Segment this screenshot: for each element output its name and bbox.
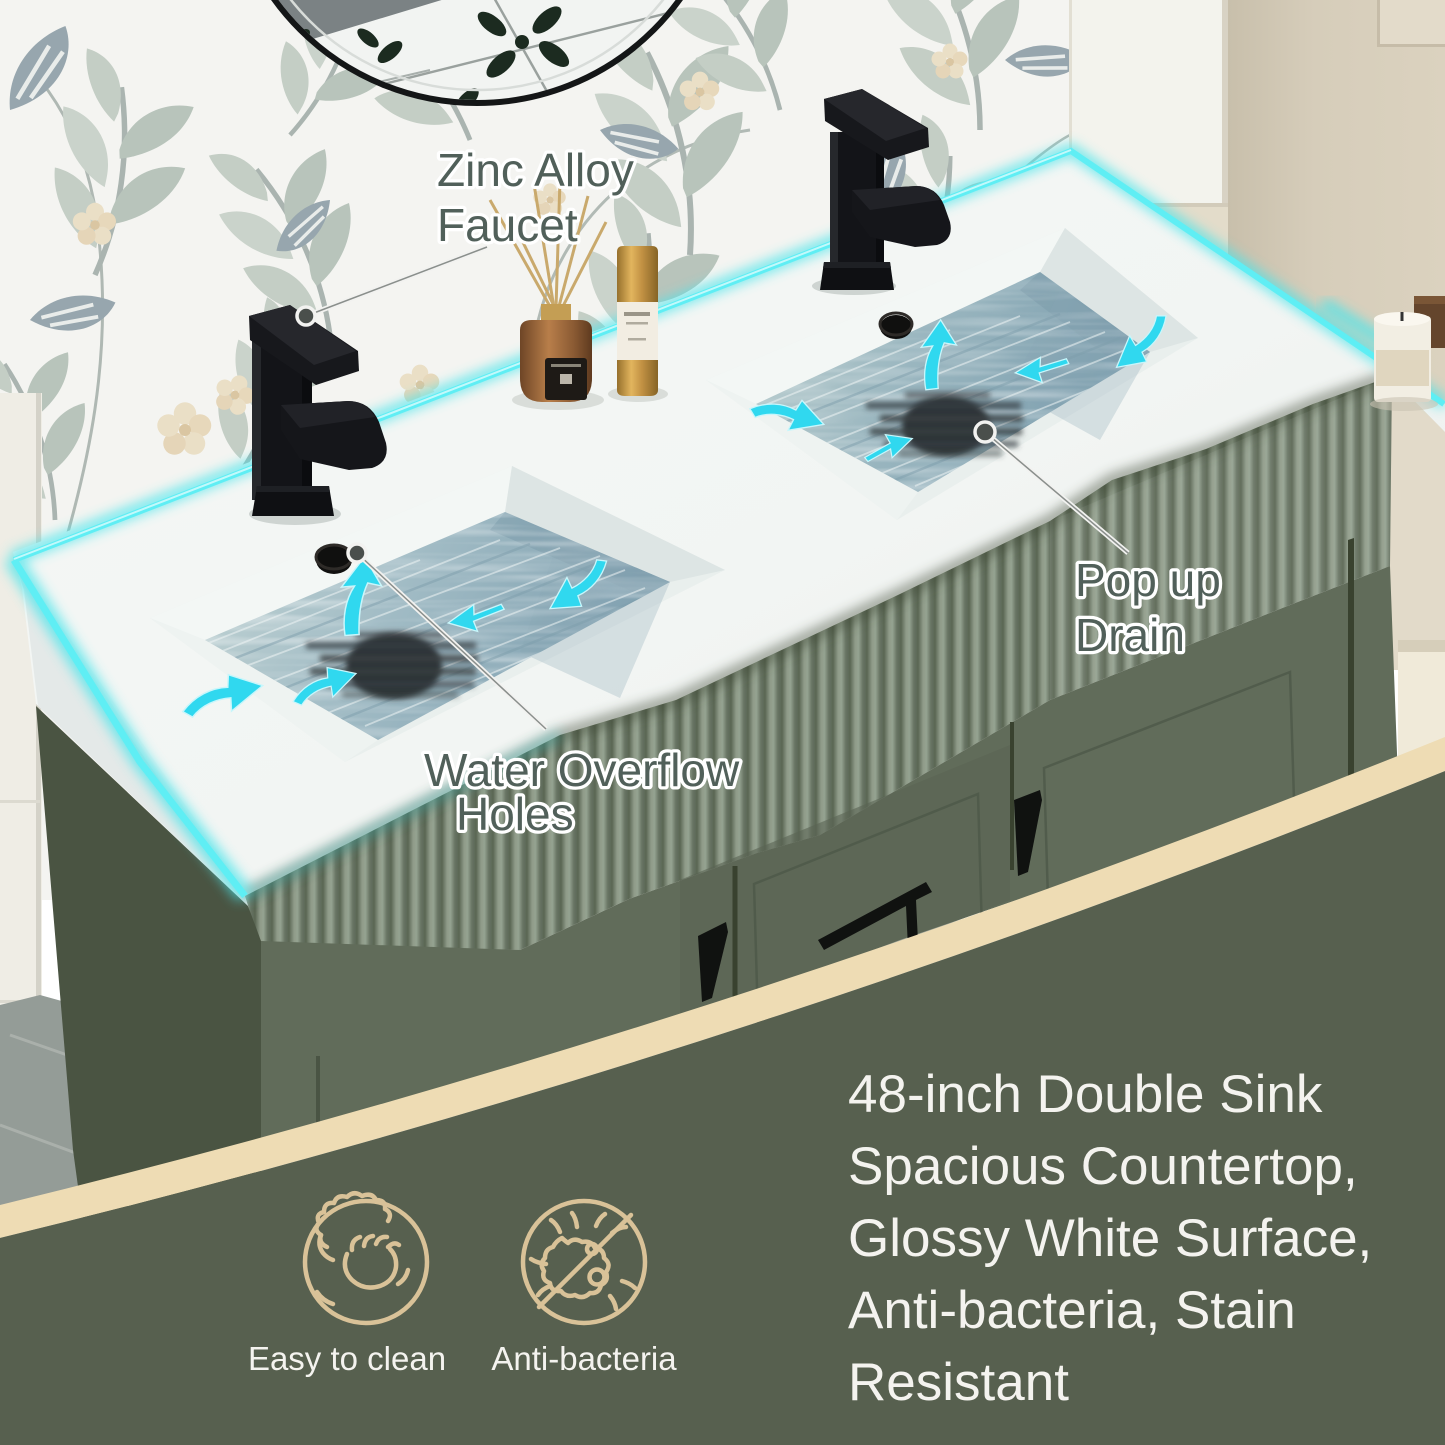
svg-text:Resistant: Resistant: [848, 1353, 1069, 1412]
svg-text:Glossy White Surface,: Glossy White Surface,: [848, 1209, 1372, 1268]
svg-text:Zinc Alloy: Zinc Alloy: [437, 144, 634, 196]
svg-text:Faucet: Faucet: [437, 199, 578, 251]
svg-text:48-inch Double Sink: 48-inch Double Sink: [848, 1065, 1323, 1124]
svg-text:Easy to clean: Easy to clean: [248, 1340, 446, 1377]
svg-text:Drain: Drain: [1075, 609, 1185, 661]
svg-text:Spacious Countertop,: Spacious Countertop,: [848, 1137, 1358, 1196]
svg-text:Anti-bacteria: Anti-bacteria: [491, 1340, 677, 1377]
svg-text:Anti-bacteria, Stain: Anti-bacteria, Stain: [848, 1281, 1296, 1340]
svg-text:Holes: Holes: [456, 788, 574, 840]
svg-text:Pop up: Pop up: [1075, 554, 1221, 606]
